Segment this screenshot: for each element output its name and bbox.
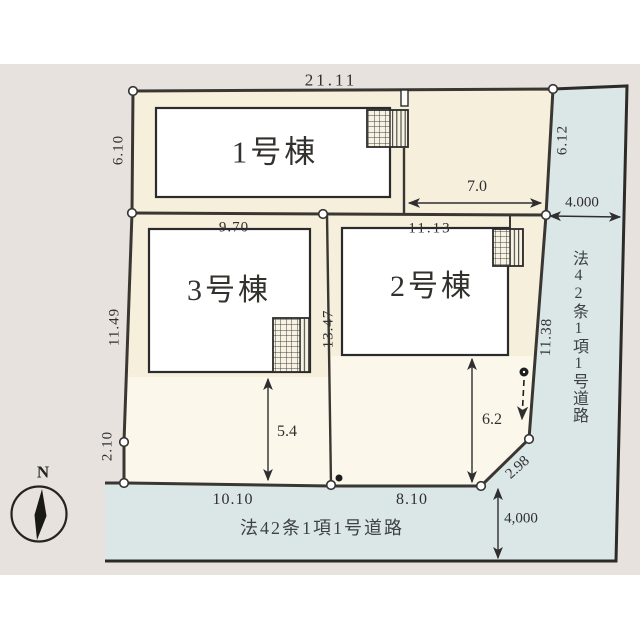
dim-right-upper: 6.12: [556, 125, 571, 155]
building-2-stairs-hatch: [493, 229, 523, 266]
boundary-stub-top: [401, 90, 408, 106]
dim-building3-width: 9.70: [219, 221, 249, 236]
building-3-stairs-hatch: [273, 318, 310, 372]
dim-road-width-right: 4.000: [565, 196, 599, 211]
dim-upper-right-lot-width: 7.0: [467, 179, 487, 195]
building-3-label: 3号棟: [187, 276, 271, 306]
dim-top-width: 21.11: [305, 72, 358, 89]
dim-left-middle: 11.49: [108, 308, 123, 346]
dim-left-lower: 2.10: [101, 431, 116, 461]
dim-left-upper: 6.10: [112, 135, 127, 165]
dim-building2-width: 11.13: [408, 222, 451, 237]
boundary-marker-dot: [336, 475, 343, 482]
dim-bottom-right-width: 8.10: [396, 492, 428, 508]
dim-yard-depth-lot3: 5.4: [277, 424, 297, 440]
dim-lot-divider: 13.47: [322, 310, 337, 349]
dim-road-width-bottom: 4,000: [504, 512, 538, 527]
building-1-stairs-hatch: [367, 110, 408, 147]
road-label-bottom: 法42条1項1号道路: [240, 519, 404, 537]
road-label-right: 法42条1項1号道路: [566, 250, 590, 430]
dim-right-lower: 11.38: [539, 318, 555, 357]
dim-bottom-left-width: 10.10: [213, 492, 254, 508]
lot-divider-horizontal: [132, 213, 546, 215]
compass-north-label: N: [37, 464, 49, 481]
site-plan-page: 21.11 6.10 9.70 11.13 7.0 6.12 4.000 11.…: [0, 0, 640, 640]
dim-yard-depth-lot2: 6.2: [482, 412, 502, 428]
building-1-label: 1号棟: [232, 137, 319, 168]
building-2-label: 2号棟: [390, 272, 474, 302]
